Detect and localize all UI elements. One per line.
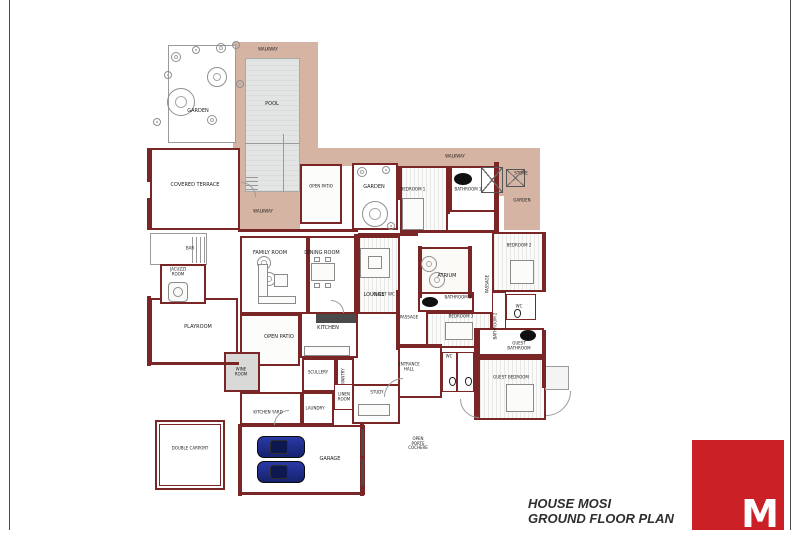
wall-segment xyxy=(400,230,496,233)
room-label: WC xyxy=(446,355,453,360)
room-label: BEDROOM 3 xyxy=(449,315,474,320)
furn-fixture xyxy=(325,283,331,288)
tree-icon xyxy=(232,41,240,49)
furn-fixture xyxy=(402,198,424,230)
toilet-fixture xyxy=(449,377,456,386)
wall-segment xyxy=(542,232,546,292)
wc-stall-2 xyxy=(457,352,474,392)
tree-icon xyxy=(164,71,172,79)
furn-fixture xyxy=(358,404,390,416)
room-label: ATRIUM xyxy=(437,274,456,280)
room-label: GUEST WC xyxy=(373,293,395,298)
room-label: JACUZZI ROOM xyxy=(168,267,188,276)
car-2 xyxy=(257,461,305,483)
kitchen-yard xyxy=(240,392,302,425)
dark-fixture xyxy=(361,429,364,456)
room-label: STORE xyxy=(514,172,527,177)
room-label: GARDEN xyxy=(513,199,530,204)
wall-segment xyxy=(147,296,151,366)
wall-segment xyxy=(468,246,472,298)
room-label: POOL xyxy=(265,102,279,108)
room-label: SCULLERY xyxy=(308,371,328,376)
entrance-hall xyxy=(398,346,442,398)
room-label: PLAYROOM xyxy=(184,325,212,331)
furn-fixture xyxy=(304,346,350,356)
room-label: WINE ROOM xyxy=(232,367,250,376)
furn-fixture xyxy=(274,274,288,287)
toilet-fixture xyxy=(514,309,521,318)
tree-icon xyxy=(387,222,395,230)
tree-icon xyxy=(236,80,244,88)
ellipse-fixture xyxy=(422,297,438,307)
room-label: COVERED TERRACE xyxy=(171,183,220,189)
room-label: PASSAGE xyxy=(400,316,418,321)
ellipse-fixture xyxy=(454,173,472,185)
room-label: OPEN PATIO xyxy=(309,185,333,190)
wall-segment xyxy=(238,229,358,232)
room-label: GARDEN xyxy=(187,109,209,115)
furn-fixture xyxy=(510,260,534,284)
wall-segment xyxy=(238,492,364,495)
room-label: KITCHEN xyxy=(317,326,339,332)
wall-segment xyxy=(147,362,239,365)
wall-segment xyxy=(358,233,418,236)
dark-fixture xyxy=(316,314,356,323)
wall-segment xyxy=(147,198,152,230)
room-label: DINING ROOM xyxy=(304,251,339,257)
room-label: ENTRANCE HALL xyxy=(396,362,422,371)
room-label: BEDROOM 1 xyxy=(401,188,426,193)
tree-icon xyxy=(207,115,217,125)
line-fixture xyxy=(245,143,300,144)
dark-fixture xyxy=(361,459,364,486)
room-label: OPEN PORTE COCHERE xyxy=(406,437,430,451)
tree-icon xyxy=(216,43,226,53)
architect-logo: M xyxy=(692,440,784,530)
toilet-fixture xyxy=(465,377,472,386)
tree-icon xyxy=(382,166,390,174)
car-1 xyxy=(257,436,305,458)
skylight-1 xyxy=(481,167,503,193)
tree-icon xyxy=(357,167,367,177)
tree-icon xyxy=(421,256,437,272)
room-label: KITCHEN YARD xyxy=(253,411,282,416)
atrium xyxy=(420,247,472,297)
furn-fixture xyxy=(258,296,296,304)
room-label: OPEN PATIO xyxy=(264,335,294,341)
room-label: WALKWAY xyxy=(253,210,273,215)
carport xyxy=(155,420,225,490)
covered-terrace xyxy=(150,148,240,230)
tree-icon xyxy=(207,67,227,87)
floor-plan: WALKWAYPOOLGARDENCOVERED TERRACEWALKWAYO… xyxy=(0,0,800,530)
pool xyxy=(245,58,300,192)
room-label: LINEN ROOM xyxy=(336,392,352,401)
furn-fixture xyxy=(506,384,534,412)
wall-segment xyxy=(354,234,358,316)
room-label: GUEST BEDROOM xyxy=(493,376,529,381)
room-label: PASSAGE xyxy=(486,275,491,293)
room-label: GUEST BATHROOM xyxy=(505,341,533,350)
room-label: BATHROOM 2 xyxy=(494,313,499,340)
furn-fixture xyxy=(445,322,473,340)
tree-icon xyxy=(171,52,181,62)
project-title: HOUSE MOSI xyxy=(528,496,674,511)
room-label: DOUBLE CARPORT xyxy=(172,447,209,452)
wall-segment xyxy=(396,166,400,200)
room-label: GARDEN xyxy=(363,185,385,191)
furn-fixture xyxy=(173,287,183,297)
logo-letter: M xyxy=(741,492,779,536)
room-label: FAMILY ROOM xyxy=(253,251,287,257)
wall-segment xyxy=(446,166,450,214)
room-label: PANTRY xyxy=(342,368,347,383)
walkway-pool-right xyxy=(300,60,318,150)
furn-fixture xyxy=(314,283,320,288)
wall-segment xyxy=(542,330,546,388)
furn-fixture xyxy=(368,256,382,269)
tree-icon xyxy=(192,46,200,54)
room-label: GARAGE xyxy=(320,457,341,463)
wall-segment xyxy=(476,356,546,359)
room-label: STUDY xyxy=(370,391,383,396)
furn-fixture xyxy=(325,257,331,262)
garage xyxy=(240,425,365,495)
title-block: HOUSE MOSI GROUND FLOOR PLAN xyxy=(528,496,674,526)
tree-icon xyxy=(362,201,388,227)
open-patio-upper xyxy=(300,164,342,224)
room-label: BATHROOM 1 xyxy=(455,188,482,193)
room-label: WC xyxy=(516,305,523,310)
room-label: BATHROOM 3 xyxy=(445,296,472,301)
furn-fixture xyxy=(258,264,268,300)
furn-fixture xyxy=(311,263,335,281)
terrace-steps xyxy=(545,366,569,390)
room-label: WALKWAY xyxy=(258,48,278,53)
room-label: BEDROOM 2 xyxy=(507,244,532,249)
wall-segment xyxy=(147,148,152,182)
wall-segment xyxy=(398,344,442,347)
wall-segment xyxy=(238,424,242,496)
room-label: BAR xyxy=(186,247,194,252)
furn-fixture xyxy=(314,257,320,262)
wall-segment xyxy=(418,246,422,298)
drawing-sheet: WALKWAYPOOLGARDENCOVERED TERRACEWALKWAYO… xyxy=(0,0,800,530)
room-label: WALKWAY xyxy=(445,155,465,160)
drawing-title: GROUND FLOOR PLAN xyxy=(528,511,674,526)
room-label: LAUNDRY xyxy=(305,407,324,412)
tree-icon xyxy=(153,118,161,126)
